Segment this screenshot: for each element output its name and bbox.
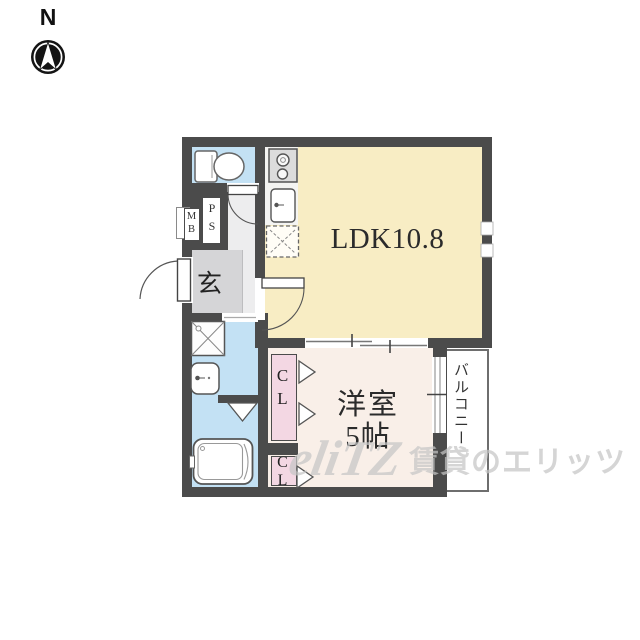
entrance-door-opening [177, 257, 193, 303]
watermark-text: 賃貸のエリッツ [409, 437, 626, 481]
floorplan-canvas: N [0, 0, 640, 640]
washroom-door-opening [222, 313, 258, 322]
closet-upper-label: CL [272, 366, 292, 412]
ldk-label: LDK10.8 [310, 223, 465, 256]
compass-north-label: N [36, 4, 60, 31]
pipe-shaft-label: PS [204, 201, 219, 237]
agency-watermark: eliTZ 賃貸のエリッツ [290, 436, 626, 481]
toilet-door-opening [227, 183, 259, 192]
toilet-room-floor [192, 147, 262, 183]
compass-icon [31, 40, 65, 74]
entrance-label: 玄 [197, 264, 222, 300]
wall-bath-divider [218, 395, 262, 403]
kitchen-counter [265, 147, 298, 225]
wall-wet-closet [258, 322, 268, 497]
watermark-logo: eliTZ [286, 436, 405, 481]
washroom-bathroom-floor [192, 322, 258, 487]
meter-box-label: MB [186, 211, 197, 237]
wall-bottom [182, 487, 447, 497]
wall-top [182, 137, 492, 147]
balcony-window-opening [432, 357, 446, 433]
sliding-door-opening [305, 338, 428, 348]
wall-right-upper [482, 137, 492, 348]
